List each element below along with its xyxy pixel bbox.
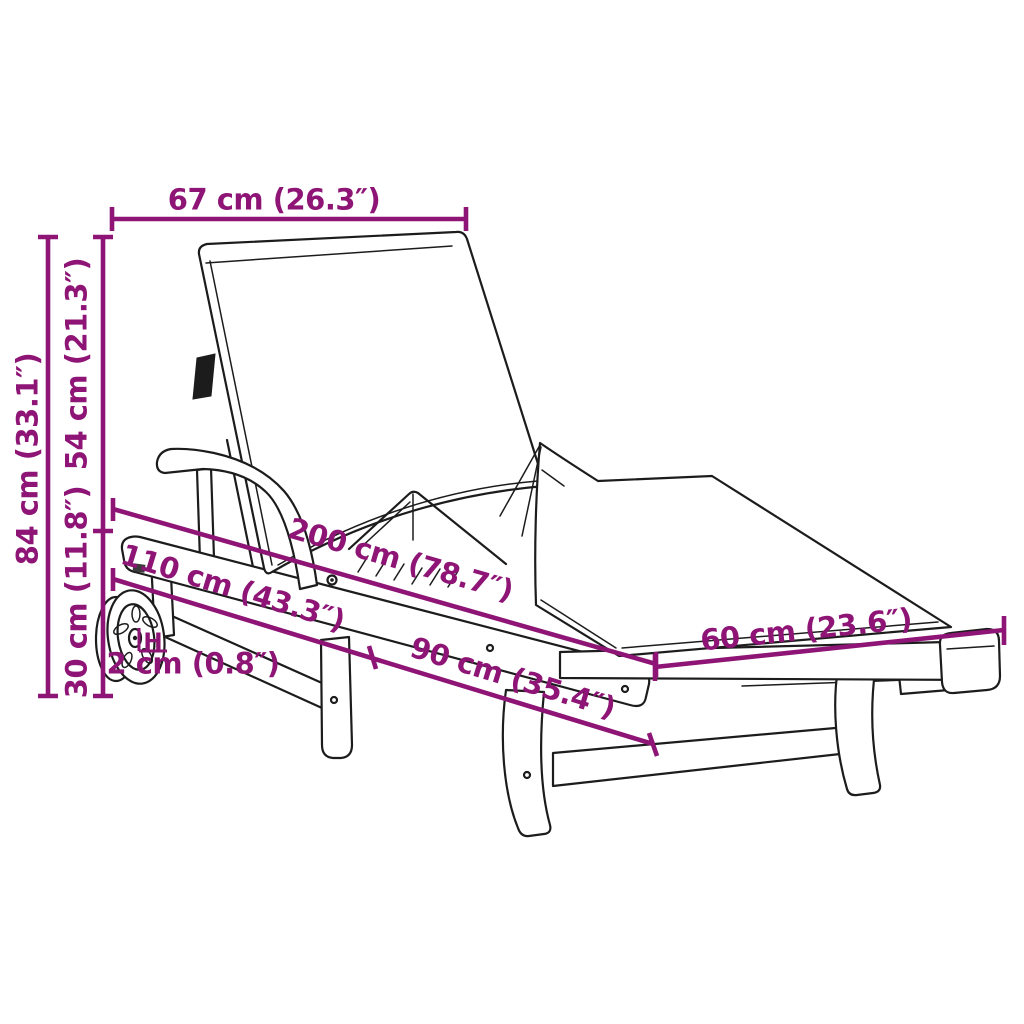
- dim-backrest-width-label: 67 cm (26.3″): [168, 182, 380, 216]
- diagram-canvas: 67 cm (26.3″) 84 cm (33.1″) 54 cm (21.3″…: [0, 0, 1024, 1024]
- dim-base-height-label: 30 cm (11.8″): [59, 486, 93, 698]
- cushion-strap: [193, 354, 215, 399]
- dim-total-height-label: 84 cm (33.1″): [10, 353, 44, 565]
- dim-hub-marker-label: H: [143, 629, 162, 655]
- product-dimension-diagram: 67 cm (26.3″) 84 cm (33.1″) 54 cm (21.3″…: [0, 0, 1024, 1024]
- dim-backrest-height-label: 54 cm (21.3″): [59, 258, 93, 470]
- armrest-post: [197, 468, 214, 560]
- dim-wheel-clearance-label: 2 cm (0.8″): [106, 646, 279, 680]
- lounger-drawing: [96, 232, 1000, 836]
- pivot-bolt: [328, 576, 337, 585]
- backrest-cushion: [193, 232, 545, 573]
